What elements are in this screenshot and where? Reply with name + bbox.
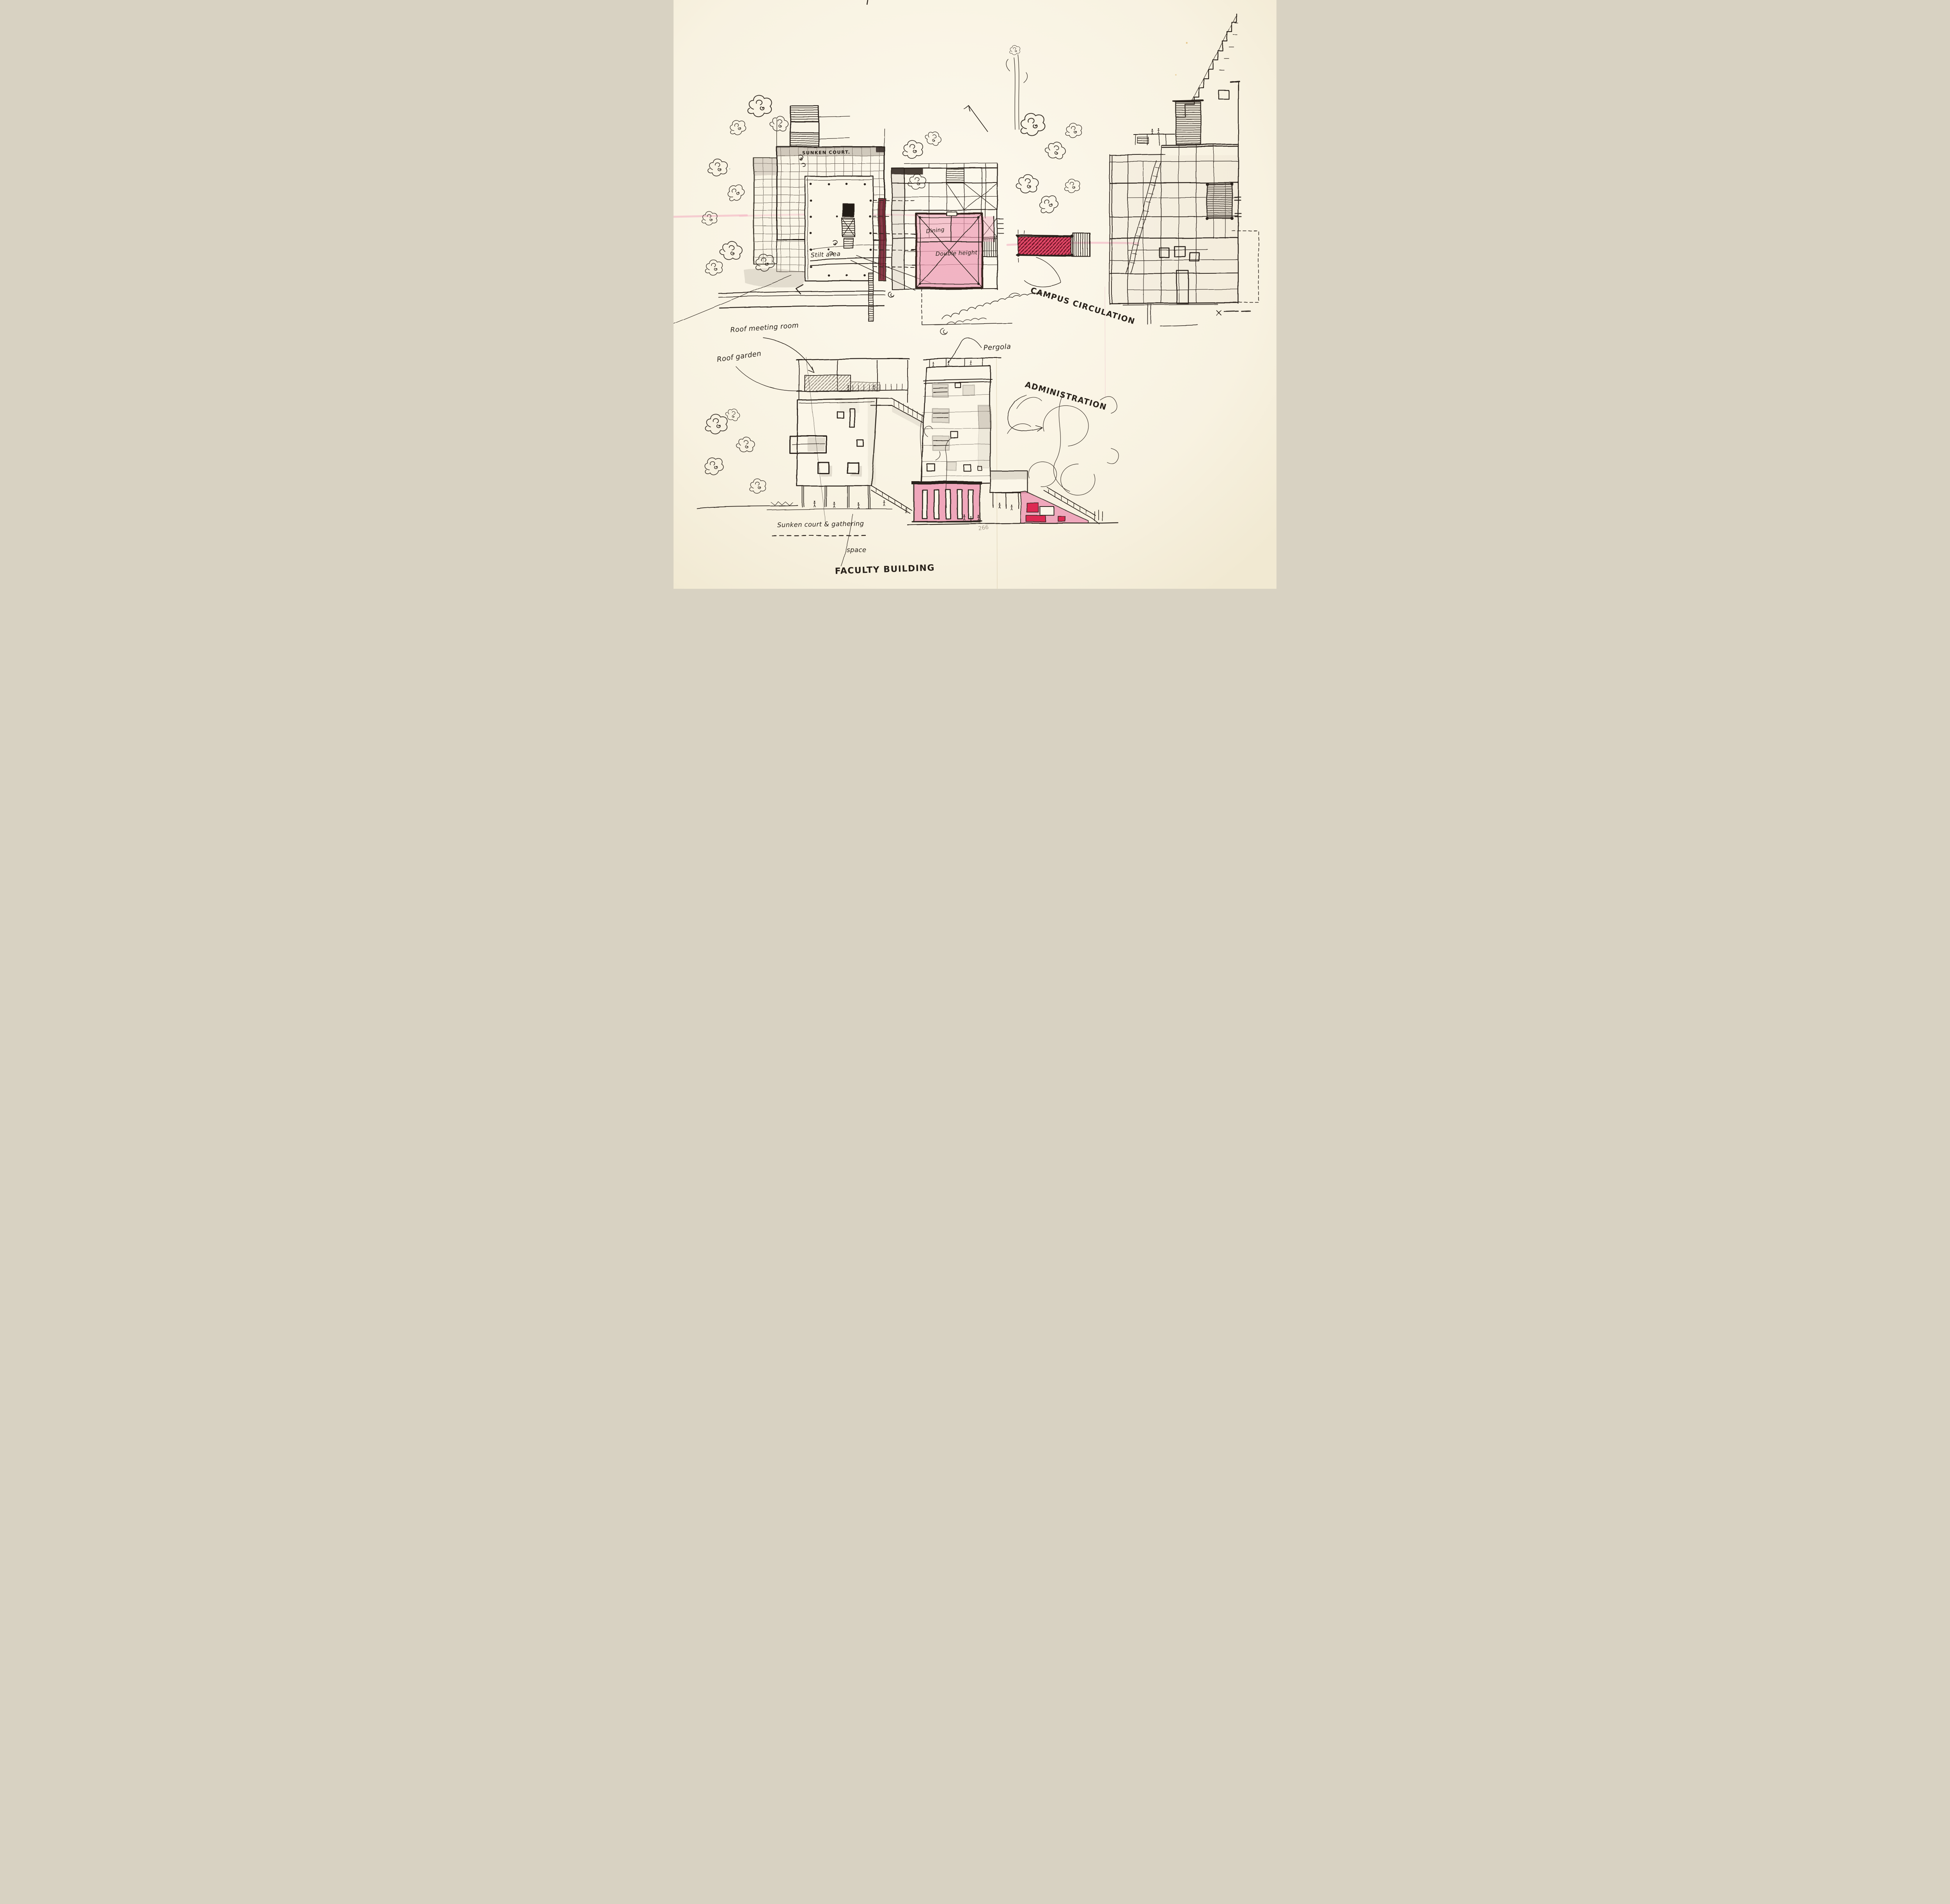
pink-colonnade-hall — [911, 481, 982, 522]
label-pergola: Pergola — [983, 342, 1011, 352]
sketch-canvas: SUNKEN COURT. Stilt area Dining Double h… — [674, 0, 1276, 589]
label-sunken-court-gathering: Sunken court & gathering — [777, 520, 864, 529]
label-sunken-court: SUNKEN COURT. — [802, 149, 851, 156]
paper-crease — [1105, 287, 1105, 397]
administration-tower — [921, 358, 1001, 484]
label-gathering-space: space — [847, 546, 866, 554]
label-stilt-area: Stilt area — [810, 250, 841, 259]
stair-core-plan — [842, 204, 854, 248]
double-height-court-plan — [911, 212, 994, 288]
paper-speck — [729, 168, 730, 169]
dark-red-channel-plan — [879, 198, 886, 281]
paper-speck — [1186, 42, 1188, 44]
sketchbook-page: SUNKEN COURT. Stilt area Dining Double h… — [674, 0, 1276, 589]
paper-speck — [1175, 74, 1177, 76]
